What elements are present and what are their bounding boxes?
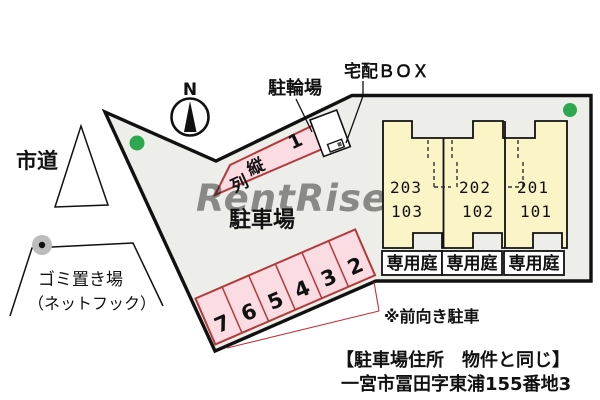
road-triangle [55,126,108,207]
front-facing-note: ※前向き駐車 [384,307,480,326]
road-label: 市道 [16,149,58,173]
unit-number-lower: 103 [391,202,423,221]
address-heading: 【駐車場住所 物件と同じ】 [336,349,570,371]
parking-lot-label: 駐車場 [229,207,295,233]
garbage-place-label: ゴミ置き場 [38,269,123,290]
unit-number-upper: 203 [390,178,422,197]
north-compass-icon: N [172,80,209,136]
garden-label: 専用庭 [509,253,560,274]
site-plan-image: 7 6 5 4 3 2 RentRise 1 縦 列 203 103 202 1… [0,0,600,400]
unit-number-upper: 201 [517,178,549,197]
unit-number-lower: 102 [462,202,494,221]
green-marker [130,136,145,151]
address-line: 一宮市冨田字東浦155番地3 [341,373,571,395]
bicycle-parking-label: 駐輪場 [268,77,322,99]
green-marker [563,103,577,117]
unit-number-upper: 202 [459,178,491,197]
unit-number-lower: 101 [520,202,552,221]
delivery-box-label: 宅配ＢＯＸ [344,61,429,82]
garden-label: 専用庭 [447,253,498,274]
site-plan-svg: 7 6 5 4 3 2 RentRise 1 縦 列 203 103 202 1… [0,0,600,400]
utility-pole-center [39,242,45,248]
garden-label: 専用庭 [387,253,438,274]
garbage-note-label: （ネットフック） [28,294,156,313]
compass-north-label: N [183,80,197,100]
